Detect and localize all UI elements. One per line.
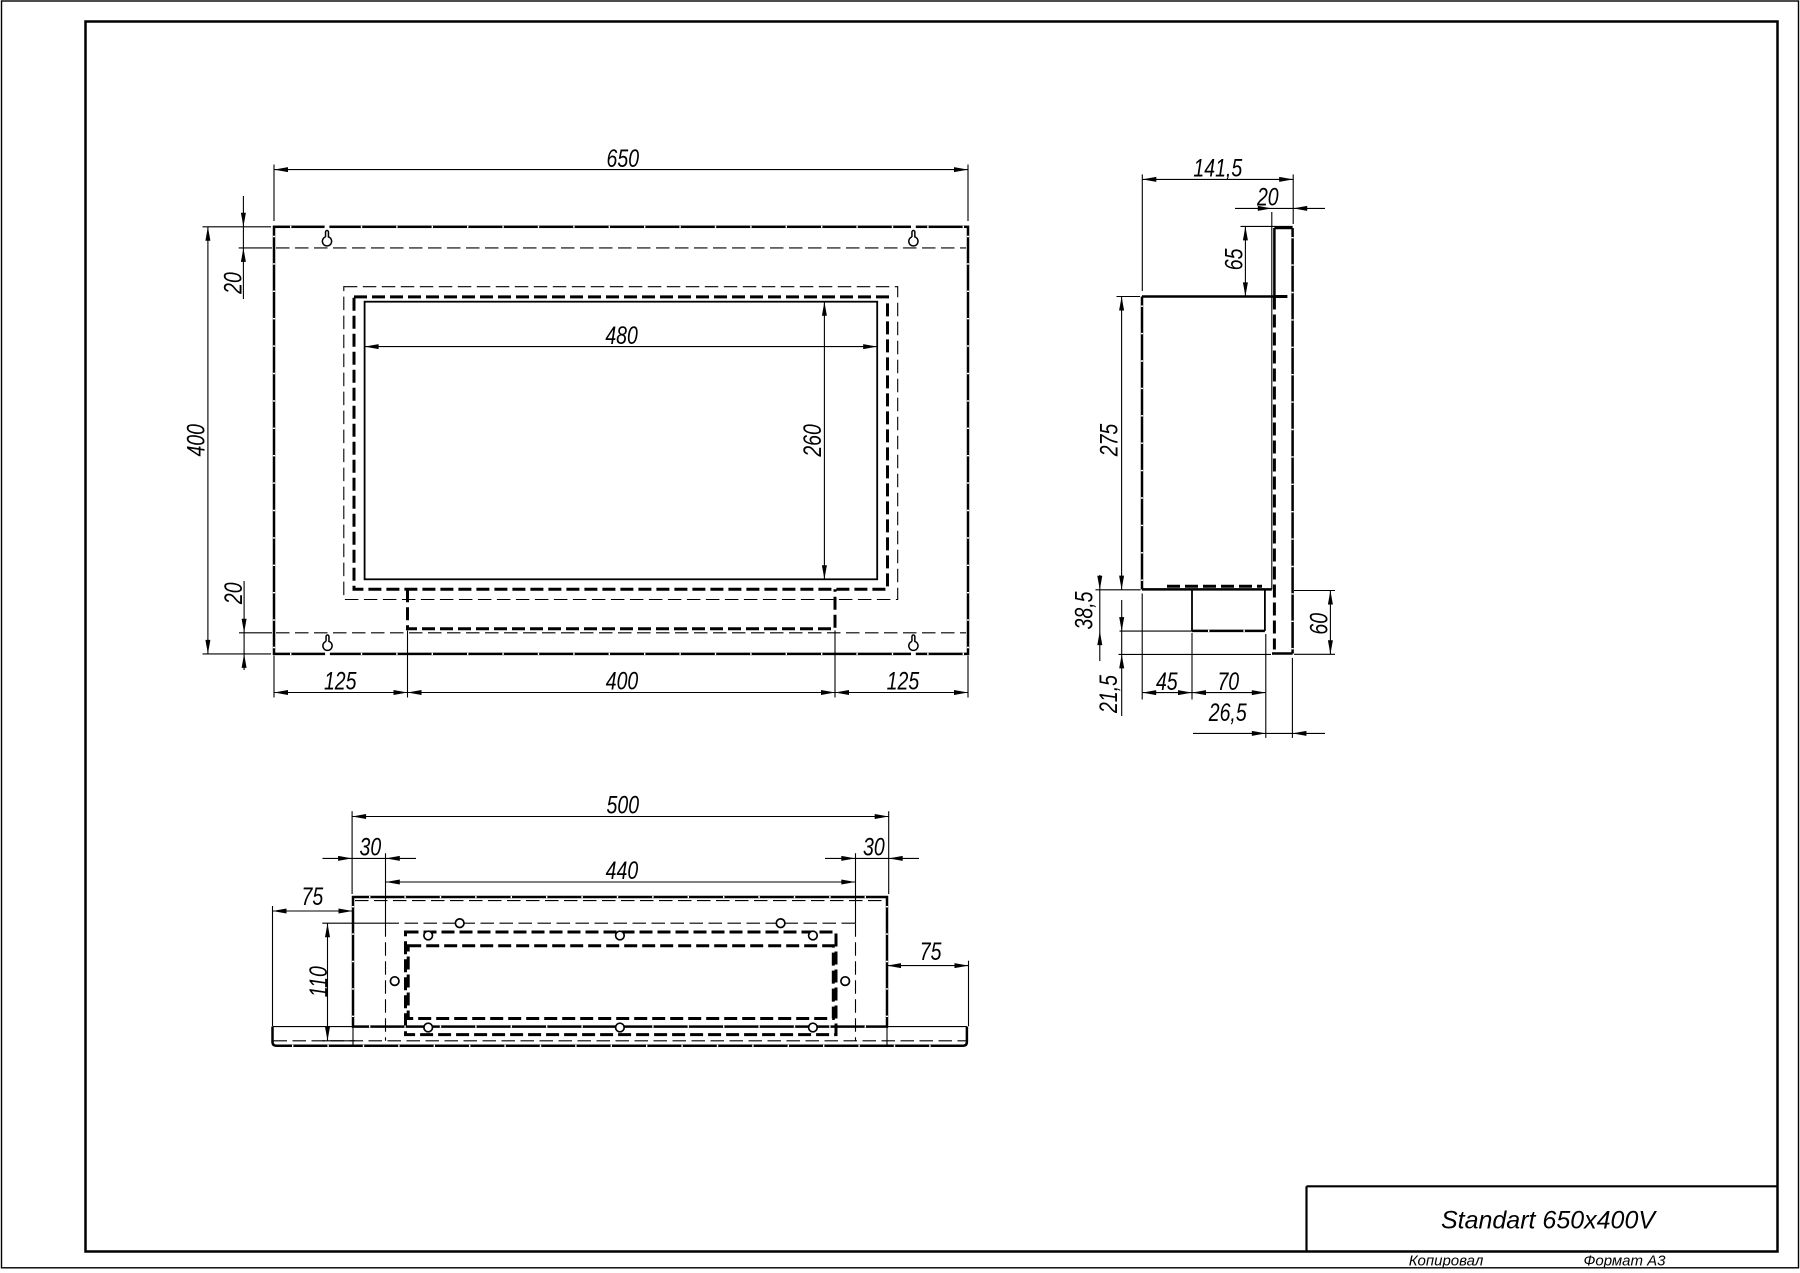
svg-text:20: 20 [220, 582, 248, 605]
svg-text:60: 60 [1305, 612, 1333, 634]
svg-text:75: 75 [920, 937, 942, 965]
svg-text:400: 400 [606, 667, 639, 695]
svg-text:38,5: 38,5 [1070, 591, 1098, 629]
svg-text:Standart 650x400V: Standart 650x400V [1441, 1207, 1657, 1235]
svg-text:75: 75 [302, 883, 324, 911]
svg-text:110: 110 [304, 966, 332, 998]
svg-text:Формат А3: Формат А3 [1583, 1253, 1666, 1270]
svg-text:65: 65 [1220, 248, 1248, 270]
svg-text:275: 275 [1095, 423, 1123, 457]
svg-text:141,5: 141,5 [1193, 154, 1242, 182]
svg-text:30: 30 [863, 833, 885, 861]
svg-text:Копировал: Копировал [1409, 1253, 1484, 1270]
svg-text:70: 70 [1217, 667, 1239, 695]
svg-text:125: 125 [324, 667, 357, 695]
svg-text:21,5: 21,5 [1095, 675, 1123, 714]
svg-text:20: 20 [219, 272, 247, 295]
svg-text:30: 30 [360, 833, 382, 861]
svg-text:400: 400 [182, 424, 210, 457]
svg-text:26,5: 26,5 [1208, 699, 1247, 727]
svg-text:500: 500 [607, 791, 640, 819]
svg-text:650: 650 [607, 144, 640, 172]
svg-text:440: 440 [606, 857, 639, 885]
svg-text:480: 480 [605, 321, 638, 349]
svg-text:260: 260 [798, 424, 826, 458]
svg-text:45: 45 [1156, 667, 1178, 695]
svg-text:125: 125 [887, 667, 920, 695]
svg-text:20: 20 [1256, 183, 1279, 211]
